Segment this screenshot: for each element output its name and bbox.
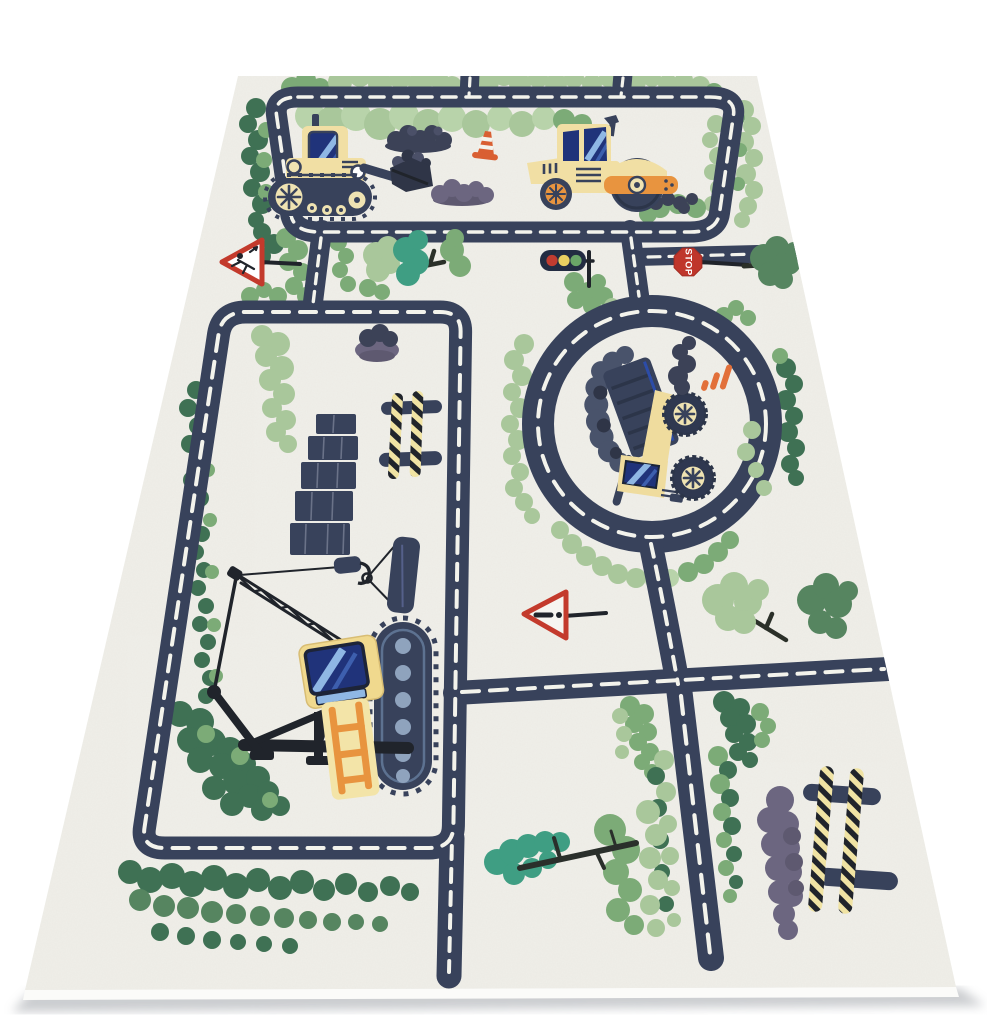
- sign-pole: [260, 262, 300, 264]
- crane-cab: [298, 634, 385, 709]
- green-light: [570, 255, 581, 266]
- roller-window-front: [563, 130, 579, 163]
- truck-wheel-rear: [664, 393, 706, 435]
- roller-front-wheel: [540, 178, 572, 210]
- roller-window-rear: [584, 127, 609, 163]
- red-light: [546, 255, 557, 266]
- rug-illustration: STOP: [0, 0, 987, 1024]
- crane-tracks: [370, 618, 436, 794]
- bulldozer-tracks: [265, 175, 375, 219]
- stop-sign-label: STOP: [683, 248, 694, 276]
- truck-wheel-front: [672, 457, 714, 499]
- product-photo-play-rug: STOP: [0, 0, 987, 1024]
- stop-sign: STOP: [674, 248, 702, 276]
- yellow-light: [558, 255, 569, 266]
